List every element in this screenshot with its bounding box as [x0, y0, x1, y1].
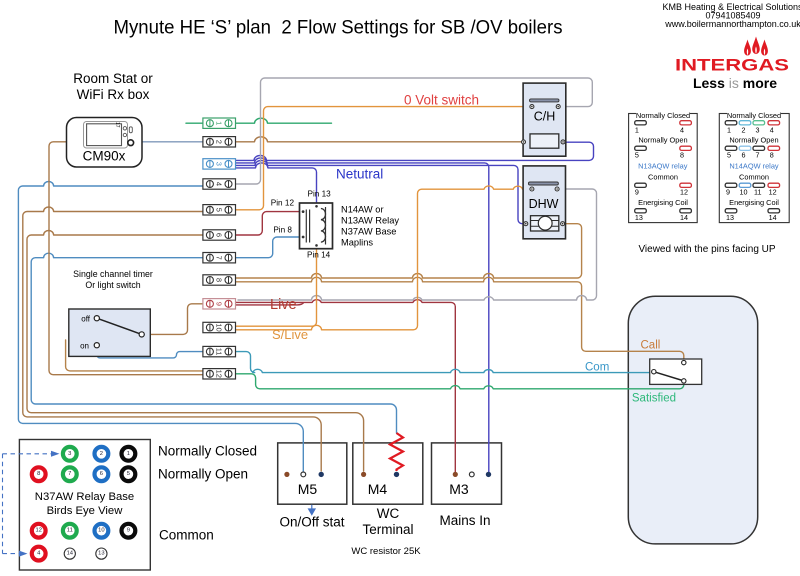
svg-text:N37AW Relay Base: N37AW Relay Base: [35, 491, 134, 503]
svg-text:12: 12: [35, 528, 41, 534]
svg-text:3: 3: [68, 451, 71, 457]
svg-text:5: 5: [727, 151, 731, 160]
svg-text:Less is more: Less is more: [693, 75, 777, 91]
svg-text:14: 14: [769, 213, 777, 222]
svg-text:Call: Call: [641, 340, 661, 352]
svg-text:N14AQW relay: N14AQW relay: [729, 161, 779, 170]
svg-text:Normally Closed: Normally Closed: [727, 111, 781, 120]
svg-text:12: 12: [215, 370, 224, 378]
svg-text:7: 7: [215, 256, 224, 260]
svg-text:4: 4: [770, 126, 774, 135]
svg-text:Satisfied: Satisfied: [632, 393, 676, 405]
svg-text:Mains In: Mains In: [439, 513, 490, 528]
svg-text:WiFi Rx box: WiFi Rx box: [77, 87, 150, 102]
svg-text:5: 5: [635, 151, 639, 160]
svg-text:Normally Open: Normally Open: [158, 467, 248, 482]
svg-text:on: on: [80, 342, 89, 351]
svg-text:On/Off stat: On/Off stat: [279, 515, 344, 530]
svg-text:Energising Coil: Energising Coil: [729, 198, 779, 207]
svg-text:N13AW Relay: N13AW Relay: [341, 216, 399, 226]
svg-text:Energising Coil: Energising Coil: [638, 198, 688, 207]
svg-text:14: 14: [67, 551, 74, 557]
svg-text:WC resistor 25K: WC resistor 25K: [351, 546, 421, 557]
svg-text:Terminal: Terminal: [362, 522, 413, 537]
svg-text:14: 14: [680, 213, 688, 222]
svg-text:Pin 14: Pin 14: [307, 251, 331, 260]
svg-text:8: 8: [215, 278, 224, 282]
svg-text:6: 6: [215, 233, 224, 237]
svg-text:3: 3: [215, 162, 224, 166]
svg-text:11: 11: [754, 188, 761, 197]
svg-text:7: 7: [68, 471, 71, 477]
svg-text:10: 10: [740, 188, 748, 197]
svg-text:M3: M3: [449, 481, 469, 497]
svg-text:C/H: C/H: [534, 110, 556, 124]
svg-text:M4: M4: [368, 481, 388, 497]
svg-text:10: 10: [215, 323, 224, 331]
svg-text:Room Stat or: Room Stat or: [73, 71, 153, 86]
svg-text:11: 11: [67, 528, 73, 534]
svg-text:4: 4: [680, 126, 684, 135]
svg-text:12: 12: [769, 188, 777, 197]
svg-text:2: 2: [742, 126, 746, 135]
svg-text:Viewed with the pins facing UP: Viewed with the pins facing UP: [638, 244, 775, 255]
svg-text:Netutral: Netutral: [336, 167, 383, 182]
svg-text:1: 1: [127, 451, 130, 457]
svg-text:Normally Open: Normally Open: [729, 135, 778, 144]
svg-text:Common: Common: [739, 172, 769, 181]
svg-text:0 Volt switch: 0 Volt switch: [404, 93, 479, 108]
svg-text:Pin 8: Pin 8: [273, 226, 292, 235]
svg-text:Normally Closed: Normally Closed: [636, 111, 690, 120]
svg-text:9: 9: [635, 188, 639, 197]
svg-text:3: 3: [756, 126, 760, 135]
svg-text:Maplins: Maplins: [341, 238, 373, 248]
svg-text:Common: Common: [648, 172, 678, 181]
svg-text:WC: WC: [377, 506, 400, 521]
svg-text:Mynute HE ‘S’ plan 2 Flow Set: Mynute HE ‘S’ plan 2 Flow Settings for S…: [114, 17, 563, 39]
svg-text:4: 4: [215, 182, 224, 186]
svg-text:DHW: DHW: [529, 197, 559, 211]
svg-text:N13AQW relay: N13AQW relay: [638, 161, 688, 170]
svg-text:12: 12: [680, 188, 688, 197]
svg-text:1: 1: [635, 126, 639, 135]
svg-text:9: 9: [726, 188, 730, 197]
svg-text:13: 13: [98, 551, 104, 557]
svg-text:13: 13: [635, 213, 643, 222]
svg-text:11: 11: [215, 348, 224, 356]
svg-text:8: 8: [37, 471, 40, 477]
svg-text:8: 8: [770, 151, 774, 160]
svg-text:9: 9: [215, 302, 224, 306]
svg-text:Com: Com: [585, 362, 609, 374]
svg-text:5: 5: [215, 208, 224, 212]
svg-text:N14AW or: N14AW or: [341, 205, 384, 215]
svg-text:1: 1: [727, 126, 731, 135]
svg-text:7: 7: [756, 151, 760, 160]
svg-text:1: 1: [215, 121, 224, 125]
svg-text:www.boilermannorthampton.co.uk: www.boilermannorthampton.co.uk: [664, 19, 800, 29]
svg-text:5: 5: [127, 471, 130, 477]
svg-text:2: 2: [100, 451, 103, 457]
svg-text:S/Live: S/Live: [272, 327, 308, 342]
svg-text:CM90x: CM90x: [83, 149, 126, 164]
svg-text:Or light switch: Or light switch: [85, 280, 140, 290]
svg-text:Pin 13: Pin 13: [308, 190, 332, 199]
svg-text:off: off: [81, 315, 91, 324]
svg-text:Common: Common: [159, 528, 214, 543]
svg-text:13: 13: [726, 213, 734, 222]
svg-text:Birds Eye View: Birds Eye View: [47, 505, 124, 517]
svg-text:Single channel timer: Single channel timer: [73, 269, 153, 279]
svg-text:Pin 12: Pin 12: [271, 199, 295, 208]
svg-text:9: 9: [127, 528, 130, 534]
svg-text:Normally Closed: Normally Closed: [158, 444, 257, 459]
svg-text:INTERGAS: INTERGAS: [675, 56, 789, 75]
svg-text:6: 6: [100, 471, 103, 477]
svg-text:Live: Live: [270, 297, 297, 313]
svg-text:N37AW Base: N37AW Base: [341, 227, 396, 237]
svg-text:M5: M5: [298, 481, 318, 497]
svg-text:8: 8: [680, 151, 684, 160]
svg-text:Normally Open: Normally Open: [638, 135, 687, 144]
svg-text:2: 2: [215, 140, 224, 144]
svg-text:6: 6: [742, 151, 746, 160]
svg-text:17: 17: [114, 122, 120, 128]
svg-text:10: 10: [98, 528, 104, 534]
